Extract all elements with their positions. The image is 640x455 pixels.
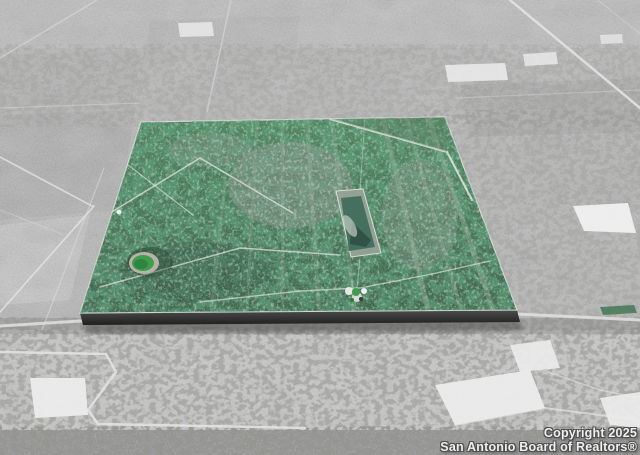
- caliche-pad: [523, 52, 558, 66]
- cluster-shadow-dot: [359, 297, 363, 301]
- cluster-pad: [361, 288, 367, 294]
- pond-water-center: [134, 259, 148, 269]
- caliche-pad: [600, 34, 623, 44]
- gate-node: [117, 210, 122, 215]
- caliche-pad: [445, 63, 508, 82]
- aerial-photo-canvas: [0, 0, 640, 455]
- aerial-photo: Copyright 2025 San Antonio Board of Real…: [0, 0, 640, 455]
- tree-clump: [350, 298, 354, 302]
- stock-pond: [127, 247, 173, 277]
- tree-clump: [352, 288, 360, 296]
- caliche-pad: [30, 378, 88, 418]
- sendero-line: [282, 119, 283, 311]
- brush-strip-dots: [0, 428, 640, 455]
- caliche-pad: [178, 22, 214, 37]
- cluster-pad: [345, 287, 353, 295]
